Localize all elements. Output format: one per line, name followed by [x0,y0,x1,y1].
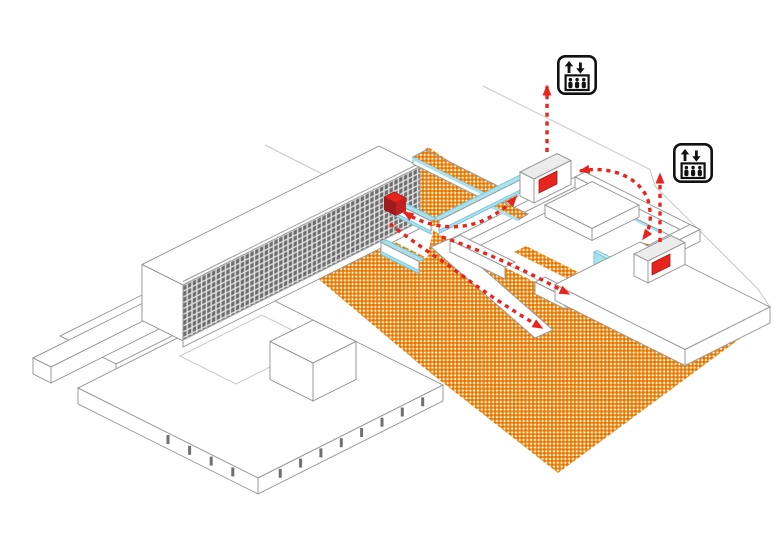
elevator-icon-1: elevator [558,56,595,93]
diagram-canvas: elevator elevator [0,0,780,541]
elevator-icon-2: elevator [674,144,711,181]
site-axonometric-diagram: elevator elevator [0,0,780,541]
